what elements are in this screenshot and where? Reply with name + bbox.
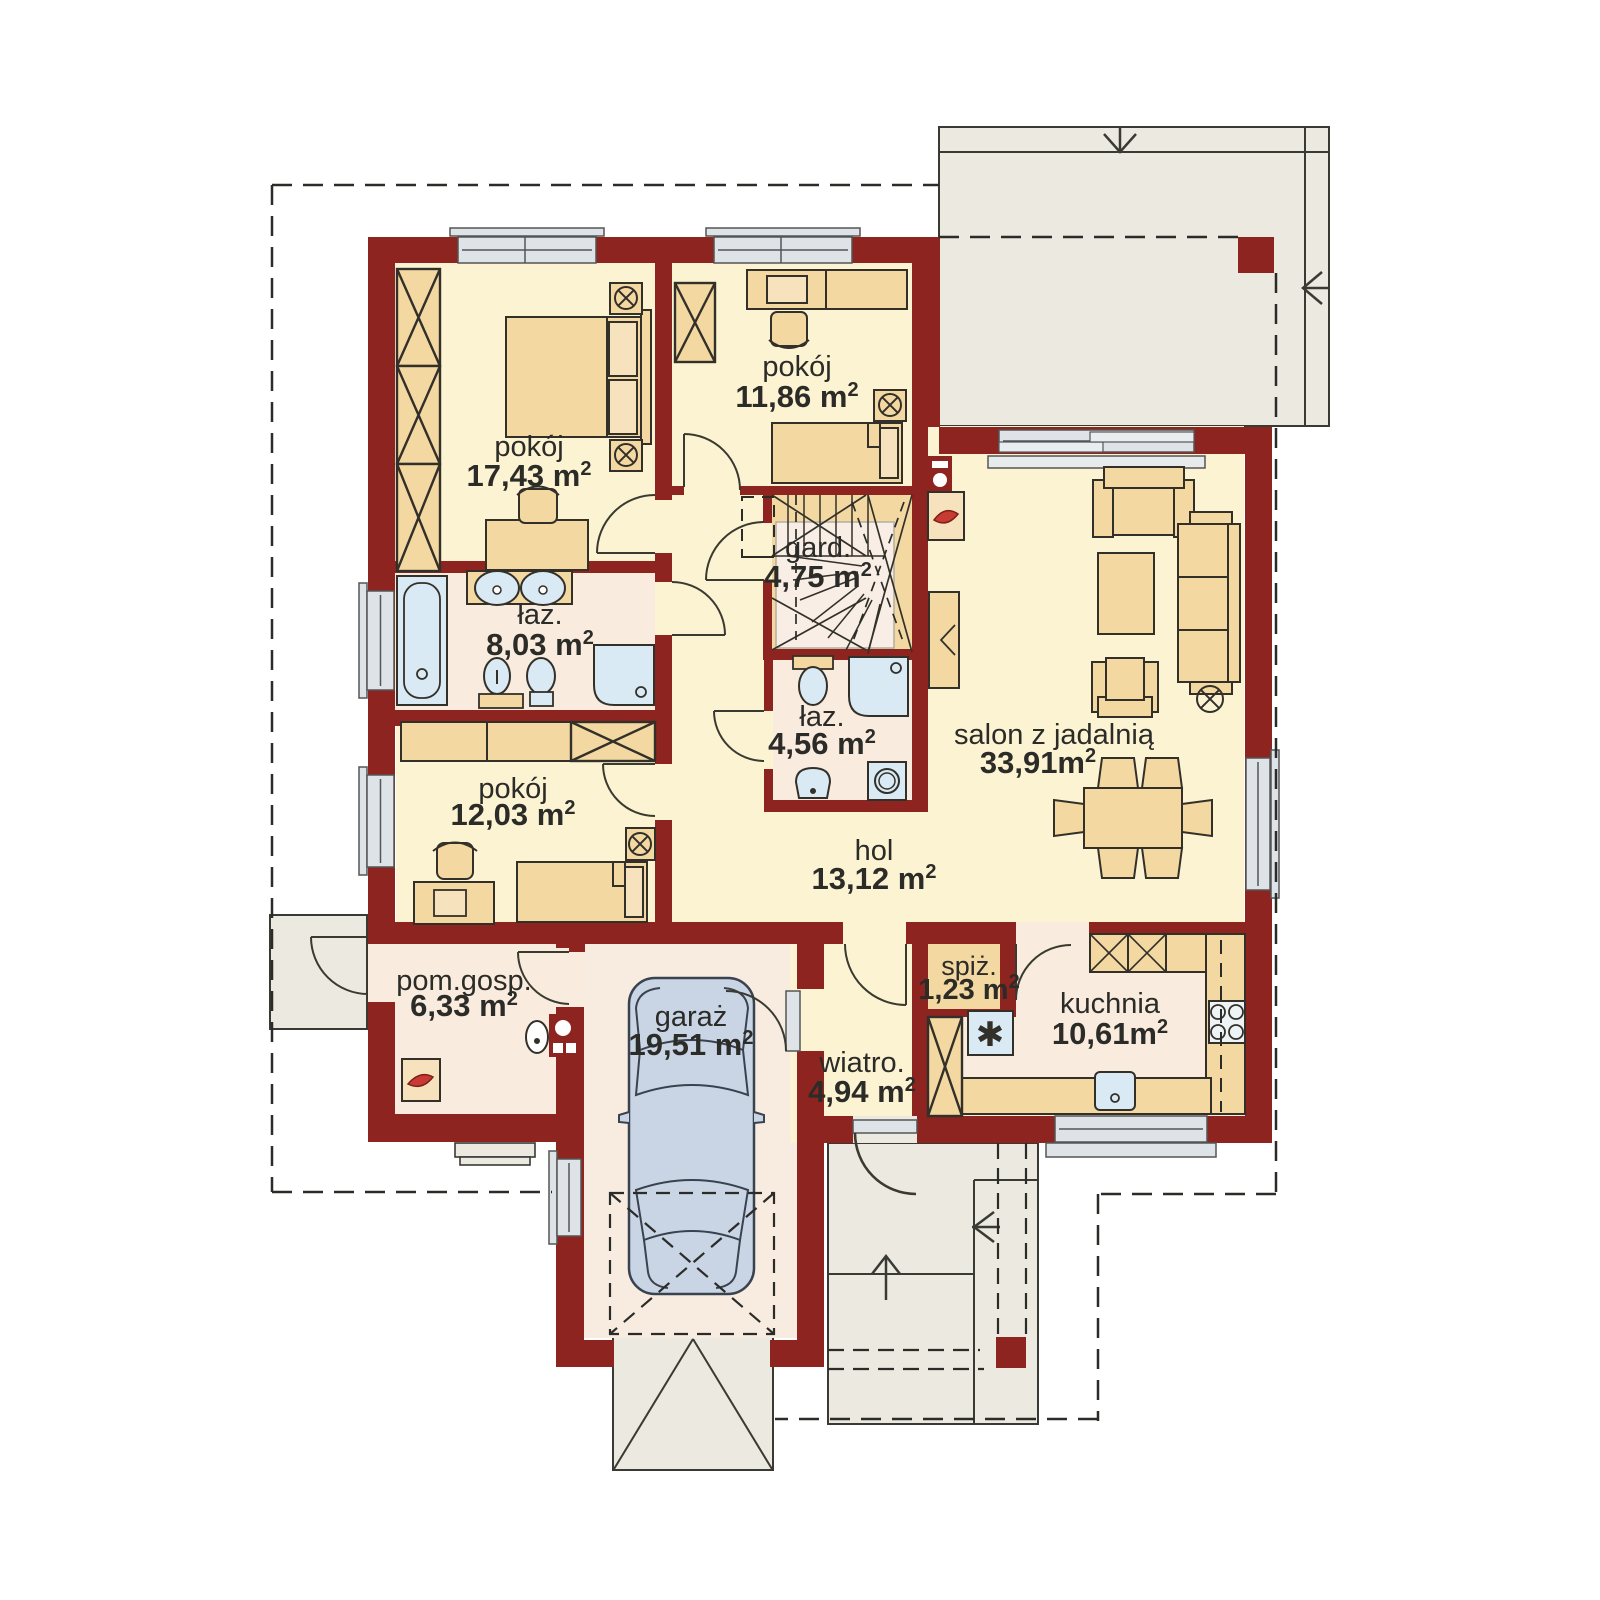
svg-text:6,33 m2: 6,33 m2	[410, 988, 518, 1023]
svg-text:33,91m2: 33,91m2	[980, 745, 1096, 780]
svg-text:12,03 m2: 12,03 m2	[451, 797, 576, 832]
svg-text:17,43 m2: 17,43 m2	[467, 458, 592, 493]
svg-text:19,51 m2: 19,51 m2	[629, 1027, 754, 1062]
svg-text:✱: ✱	[976, 1016, 1005, 1054]
svg-text:4,75 m2: 4,75 m2	[764, 559, 872, 594]
svg-text:4,56 m2: 4,56 m2	[768, 726, 876, 761]
svg-text:8,03 m2: 8,03 m2	[486, 627, 594, 662]
svg-text:4,94 m2: 4,94 m2	[808, 1074, 916, 1109]
svg-text:13,12 m2: 13,12 m2	[812, 861, 937, 896]
svg-text:11,86 m2: 11,86 m2	[735, 379, 858, 414]
svg-text:1,23 m2: 1,23 m2	[918, 971, 1019, 1006]
svg-text:10,61m2: 10,61m2	[1052, 1016, 1168, 1051]
